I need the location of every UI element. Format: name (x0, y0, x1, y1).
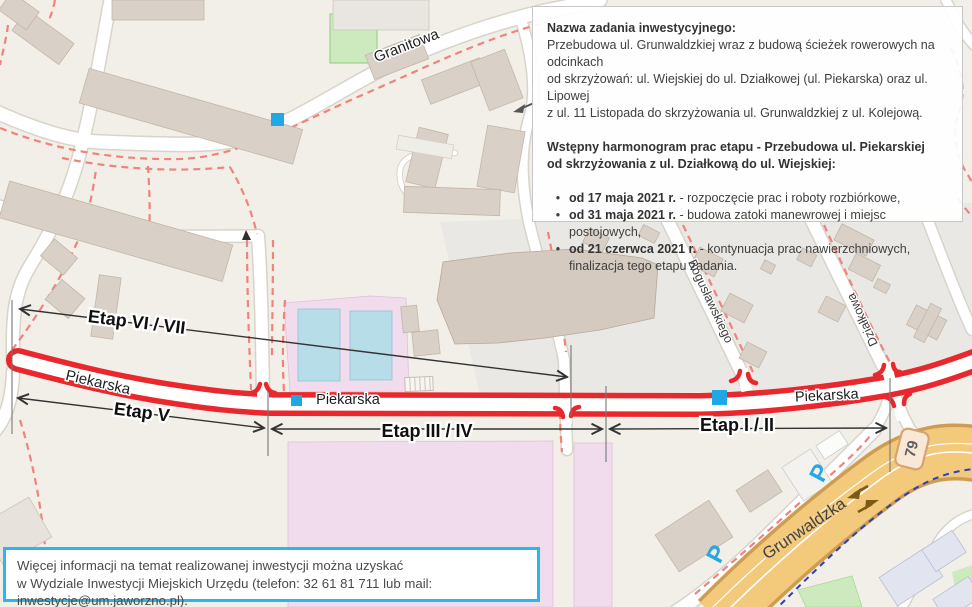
sports-field-pink (574, 443, 612, 607)
schedule-title-line: Wstępny harmonogram prac etapu - Przebud… (547, 139, 948, 156)
description-line: od skrzyżowań: ul. Wiejskiej do ul. Dzia… (547, 71, 948, 105)
stage-label-3-4: Etap III / IV (381, 421, 472, 441)
contact-line: Więcej informacji na temat realizowanej … (17, 557, 526, 575)
swimming-pool (350, 311, 392, 380)
contact-line: w Wydziale Inwestycji Miejskich Urzędu (… (17, 575, 526, 607)
blue-marker (712, 390, 727, 405)
street-label-piekarska: Piekarska (316, 392, 381, 408)
description-line: z ul. 11 Listopada do skrzyżowania ul. G… (547, 105, 948, 122)
schedule-date: od 17 maja 2021 r. (569, 191, 676, 205)
schedule-date: od 31 maja 2021 r. (569, 208, 676, 222)
panel-title: Nazwa zadania inwestycyjnego: (547, 20, 948, 37)
schedule-item: • od 31 maja 2021 r. - budowa zatoki man… (547, 207, 948, 241)
bullet-icon: • (547, 207, 569, 241)
map-screenshot: 79 (0, 0, 972, 607)
schedule-date: od 21 czerwca 2021 r. (569, 242, 696, 256)
description-line: Przebudowa ul. Grunwaldzkiej wraz z budo… (547, 37, 948, 71)
schedule-item: • od 21 czerwca 2021 r. - kontynuacja pr… (547, 241, 948, 275)
stage-label-1-2: Etap I / II (700, 415, 774, 435)
bullet-icon: • (547, 241, 569, 275)
blue-marker (291, 395, 302, 406)
blue-marker (271, 113, 284, 126)
bullet-icon: • (547, 190, 569, 207)
schedule-title-line: od skrzyżowania z ul. Działkową do ul. W… (547, 156, 948, 173)
schedule-text: - rozpoczęcie prac i roboty rozbiórkowe, (680, 191, 901, 205)
street-label-piekarska: Piekarska (795, 386, 860, 405)
contact-info-panel: Więcej informacji na temat realizowanej … (3, 547, 540, 602)
schedule-item: • od 17 maja 2021 r. - rozpoczęcie prac … (547, 190, 948, 207)
parking-strip (405, 377, 433, 392)
investment-info-panel: Nazwa zadania inwestycyjnego: Przebudowa… (532, 6, 963, 222)
